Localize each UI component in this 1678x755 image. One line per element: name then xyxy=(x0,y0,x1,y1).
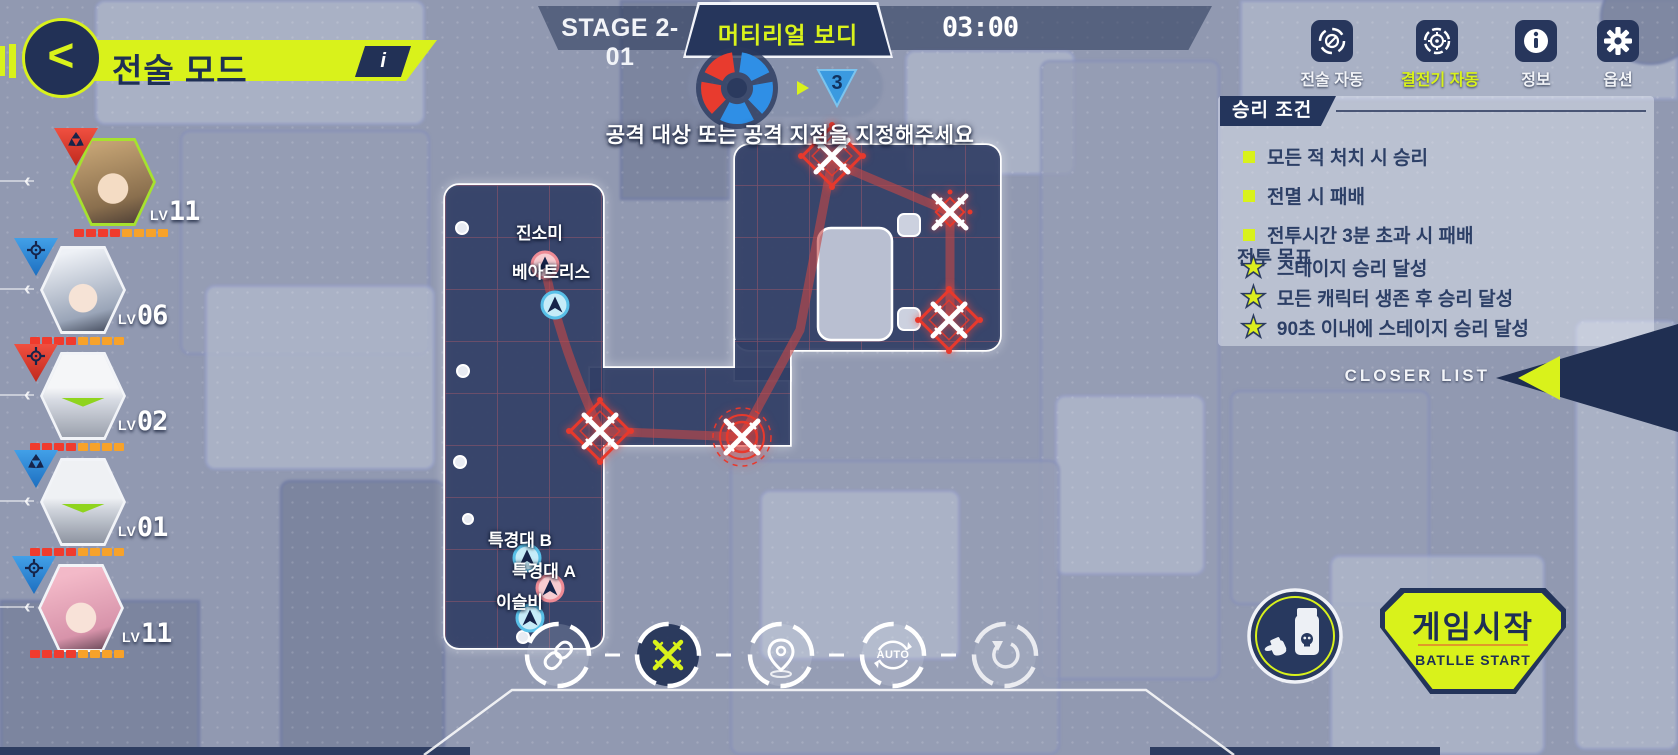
auto-label: AUTO xyxy=(869,649,917,661)
attack-mode-button[interactable] xyxy=(627,614,708,695)
battle-objective: ★ 90초 이내에 스테이지 승리 달성 xyxy=(1240,314,1529,341)
triblade-icon xyxy=(25,450,47,472)
back-button[interactable]: < xyxy=(22,18,102,98)
level-indicator: LV01 xyxy=(118,512,167,543)
closer-list-tab[interactable] xyxy=(1490,320,1678,440)
guidance-message: 공격 대상 또는 공격 지점을 지정해주세요 xyxy=(606,119,975,149)
victory-condition: 모든 적 처치 시 승리 xyxy=(1243,143,1428,170)
link-mode-button[interactable] xyxy=(517,614,598,695)
stage-number: STAGE 2-01 xyxy=(560,14,680,72)
star-icon: ★ xyxy=(1240,255,1267,281)
bullet-square-icon xyxy=(1243,229,1255,241)
banner-stripe xyxy=(0,46,5,76)
crosshair-icon xyxy=(25,238,47,260)
tactic-auto-icon xyxy=(1317,26,1347,56)
item-button[interactable] xyxy=(1249,590,1341,682)
banner-stripe xyxy=(9,44,16,78)
closer-arrow-icon xyxy=(1518,356,1560,400)
panel-topline xyxy=(1336,110,1646,112)
info-circle-icon xyxy=(1521,26,1551,56)
unit-pin-beatrice[interactable] xyxy=(542,292,568,318)
battle-objective: ★ 모든 캐릭터 생존 후 승리 달성 xyxy=(1240,284,1513,311)
unit-label: 진소미 xyxy=(516,219,563,244)
info-icon: i xyxy=(360,46,406,76)
row-chevron: ‹ xyxy=(24,278,31,301)
hp-bar xyxy=(74,229,168,237)
gear-icon xyxy=(1602,25,1634,57)
hp-bar xyxy=(30,548,124,556)
closer-list-label: CLOSER LIST xyxy=(1300,366,1490,386)
stage-info-button[interactable]: i xyxy=(355,46,411,77)
hp-bar xyxy=(30,443,124,451)
burst-auto-icon xyxy=(1422,26,1452,56)
level-indicator: LV02 xyxy=(118,406,167,437)
burst-auto-button[interactable]: 결전기 자동 xyxy=(1401,20,1473,90)
options-button[interactable]: 옵션 xyxy=(1582,20,1654,90)
battle-start-title: 게임시작 xyxy=(1380,602,1566,647)
triblade-icon xyxy=(65,128,87,150)
star-icon: ★ xyxy=(1240,285,1267,311)
battle-start-subtitle: BATLLE START xyxy=(1380,652,1566,668)
row-chevron: ‹ xyxy=(24,384,31,407)
crosshair-icon xyxy=(25,344,47,366)
battle-start-divider xyxy=(1418,644,1528,646)
bullet-square-icon xyxy=(1243,151,1255,163)
star-icon: ★ xyxy=(1240,315,1267,341)
unit-label: 베아트리스 xyxy=(512,258,590,283)
undo-button[interactable] xyxy=(964,614,1045,695)
tactic-auto-button[interactable]: 전술 자동 xyxy=(1296,20,1368,90)
move-mode-button[interactable] xyxy=(740,614,821,695)
page-title: 전술 모드 xyxy=(112,44,248,92)
victory-condition: 전멸 시 패배 xyxy=(1243,182,1365,209)
bullet-square-icon xyxy=(1243,190,1255,202)
frame-line xyxy=(424,690,1234,755)
level-indicator: LV06 xyxy=(118,300,167,331)
victory-title-badge: 승리 조건 xyxy=(1220,96,1336,126)
play-icon xyxy=(797,81,809,95)
turn-count: 3 xyxy=(822,72,852,95)
battle-prep-screen: 진소미 베아트리스 특경대 B 특경대 A 이슬비 전술 모드 < i STAG… xyxy=(0,0,1678,755)
level-indicator: LV11 xyxy=(150,196,199,227)
battle-timer: 03:00 xyxy=(930,12,1030,43)
unit-label: 특경대 B xyxy=(488,526,552,551)
row-chevron: ‹ xyxy=(24,170,31,193)
back-arrow-icon: < xyxy=(47,28,74,82)
info-button[interactable]: 정보 xyxy=(1500,20,1572,90)
row-chevron: ‹ xyxy=(24,490,31,513)
hp-bar xyxy=(30,337,124,345)
battle-objective: ★ 스테이지 승리 달성 xyxy=(1240,254,1427,281)
